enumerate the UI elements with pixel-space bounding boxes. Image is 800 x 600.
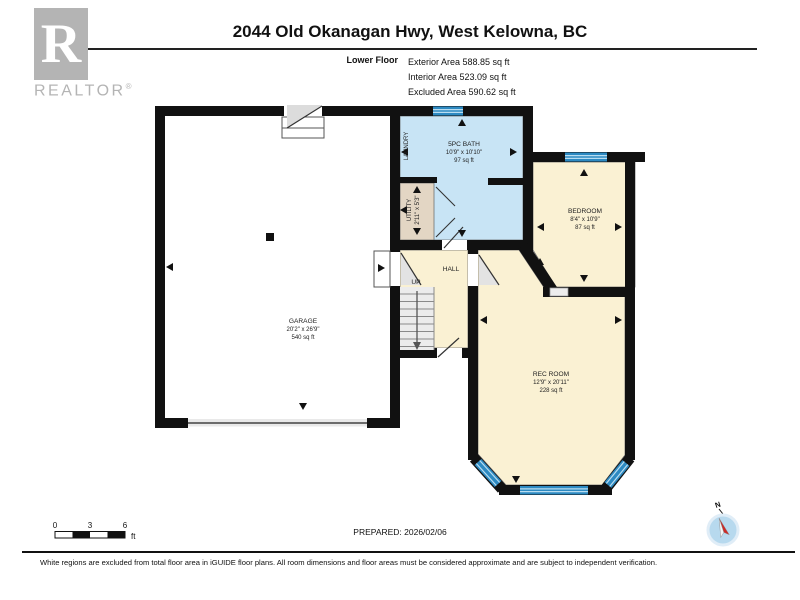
- bath-stub-wall: [488, 178, 523, 185]
- garage-sqft: 540 sq ft: [291, 335, 314, 341]
- rec-room-sqft: 228 sq ft: [539, 388, 562, 394]
- utility-dims: 2'11" x 5'3": [415, 195, 421, 224]
- realtor-brand: REALTOR®: [34, 82, 132, 100]
- bedroom-door: [550, 288, 568, 296]
- bay-bottom-window: [520, 486, 588, 495]
- bedroom-dims: 8'4" x 10'9": [570, 217, 600, 223]
- compass-icon: N: [708, 500, 738, 545]
- realtor-logo-icon: R: [34, 8, 88, 80]
- garage-bottom-left-wall: [155, 418, 188, 428]
- scale-tick-0: 0: [53, 521, 58, 530]
- north-arrow-icon: [719, 509, 723, 514]
- exterior-area: Exterior Area 588.85 sq ft: [408, 55, 516, 70]
- hall-label: HALL: [443, 266, 460, 273]
- garage-dims: 20'2" x 26'9": [287, 327, 320, 333]
- rec-room-label: REC ROOM: [533, 371, 569, 378]
- bath-bedroom-wall: [523, 106, 533, 252]
- laundry-label: LAUNDRY: [404, 132, 410, 161]
- room-fills: [400, 116, 635, 485]
- bath-sqft: 97 sq ft: [454, 158, 474, 164]
- floor-label: Lower Floor: [250, 55, 398, 65]
- right-wall: [625, 152, 635, 460]
- utility-top-wall: [400, 177, 437, 183]
- excluded-area: Excluded Area 590.62 sq ft: [408, 85, 516, 100]
- compass-north-label: N: [714, 500, 722, 510]
- scale-tick-3: 3: [88, 521, 93, 530]
- garage-door: [188, 419, 367, 427]
- bath-window: [433, 107, 463, 116]
- realtor-logo-letter: R: [41, 16, 81, 72]
- support-post: [266, 233, 274, 241]
- scale-unit: ft: [131, 532, 136, 541]
- registered-mark: ®: [126, 82, 132, 91]
- garage-entry-door: [282, 104, 324, 138]
- garage-label: GARAGE: [289, 318, 318, 325]
- realtor-brand-text: REALTOR: [34, 82, 126, 99]
- bath-dims: 10'9" x 10'10": [446, 150, 482, 156]
- disclaimer-text: White regions are excluded from total fl…: [40, 558, 780, 567]
- stairs: [400, 287, 434, 350]
- bedroom-sqft: 87 sq ft: [575, 225, 595, 231]
- interior-area: Interior Area 523.09 sq ft: [408, 70, 516, 85]
- bedroom-label: BEDROOM: [568, 208, 602, 215]
- utility-label: UTILITY: [407, 199, 413, 221]
- floorplan-page: R REALTOR® 2044 Old Okanagan Hwy, West K…: [0, 0, 800, 600]
- scale-bar: 0 3 6 ft: [53, 521, 136, 541]
- floor-area-stats: Exterior Area 588.85 sq ft Interior Area…: [408, 55, 516, 99]
- scale-tick-6: 6: [123, 521, 128, 530]
- bath-label: 5PC BATH: [448, 141, 480, 148]
- up-label: UP: [411, 279, 421, 286]
- prepared-date: PREPARED: 2026/02/06: [300, 527, 500, 537]
- bedroom-window: [565, 153, 607, 162]
- rec-room-dims: 12'9" x 20'11": [533, 380, 569, 386]
- garage-left-wall: [155, 106, 165, 428]
- page-title: 2044 Old Okanagan Hwy, West Kelowna, BC: [100, 22, 720, 42]
